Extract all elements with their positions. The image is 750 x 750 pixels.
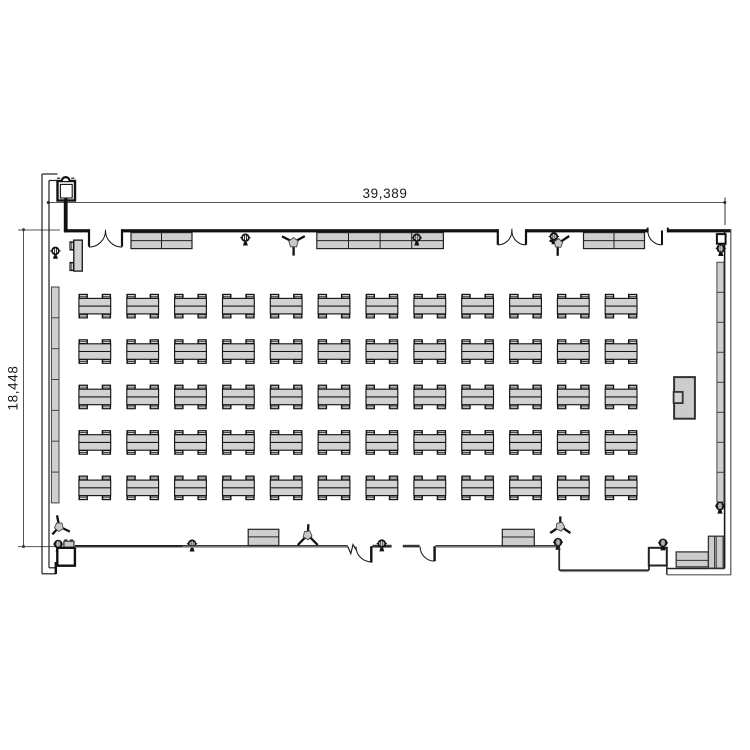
svg-text:18,448: 18,448	[6, 366, 21, 411]
svg-text:39,389: 39,389	[363, 186, 408, 201]
